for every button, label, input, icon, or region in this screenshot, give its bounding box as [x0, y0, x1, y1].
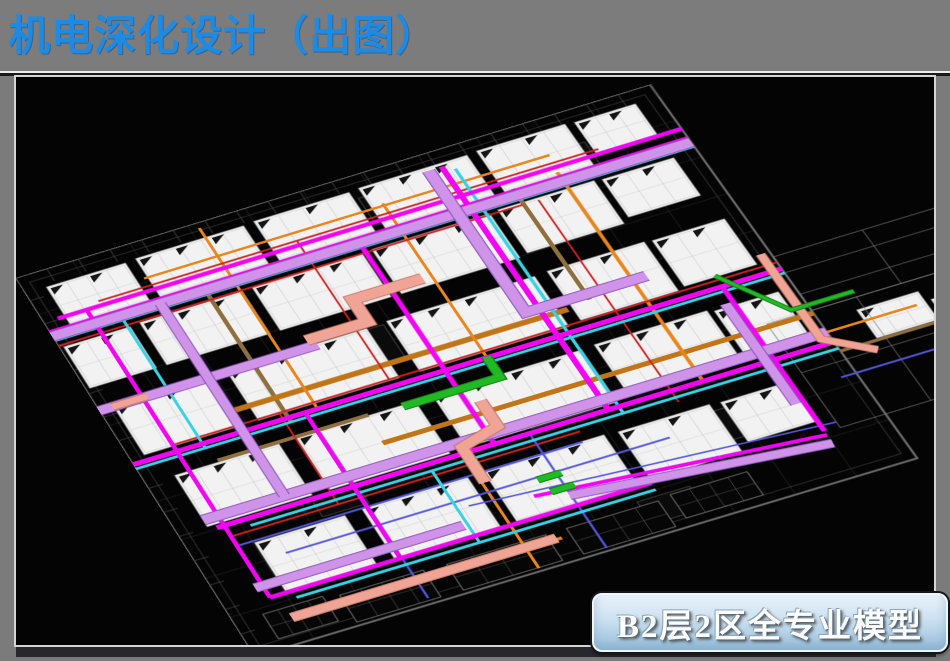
slide-title: 机电深化设计（出图）	[8, 2, 438, 63]
slide: 机电深化设计（出图） B2层2区全专业模型	[0, 0, 950, 661]
model-floor	[15, 75, 936, 647]
title-bar: 机电深化设计（出图）	[0, 0, 950, 71]
model-svg	[15, 75, 936, 647]
caption-text: B2层2区全专业模型	[617, 599, 923, 647]
caption-badge: B2层2区全专业模型	[592, 593, 948, 652]
model-viewport	[14, 75, 936, 647]
